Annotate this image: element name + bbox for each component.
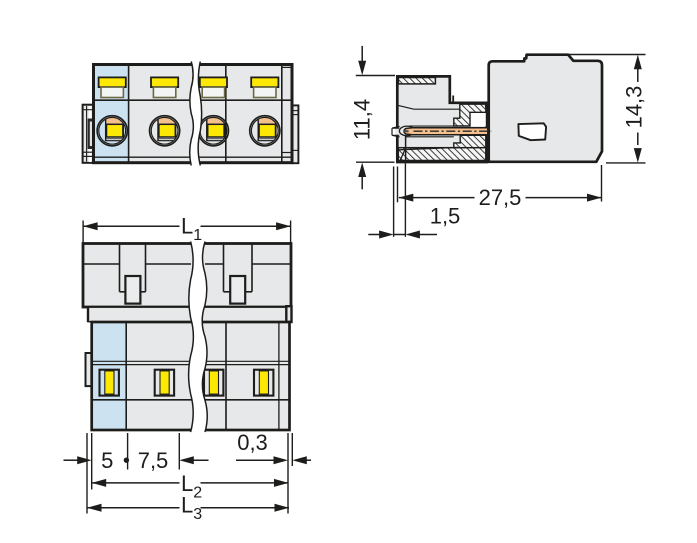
svg-text:14,3: 14,3 <box>622 86 647 129</box>
svg-text:5: 5 <box>101 448 113 473</box>
svg-text:0,3: 0,3 <box>237 430 268 455</box>
svg-text:27,5: 27,5 <box>479 185 522 210</box>
svg-text:1,5: 1,5 <box>430 204 461 229</box>
svg-text:7,5: 7,5 <box>138 448 169 473</box>
svg-text:11,4: 11,4 <box>350 99 375 140</box>
